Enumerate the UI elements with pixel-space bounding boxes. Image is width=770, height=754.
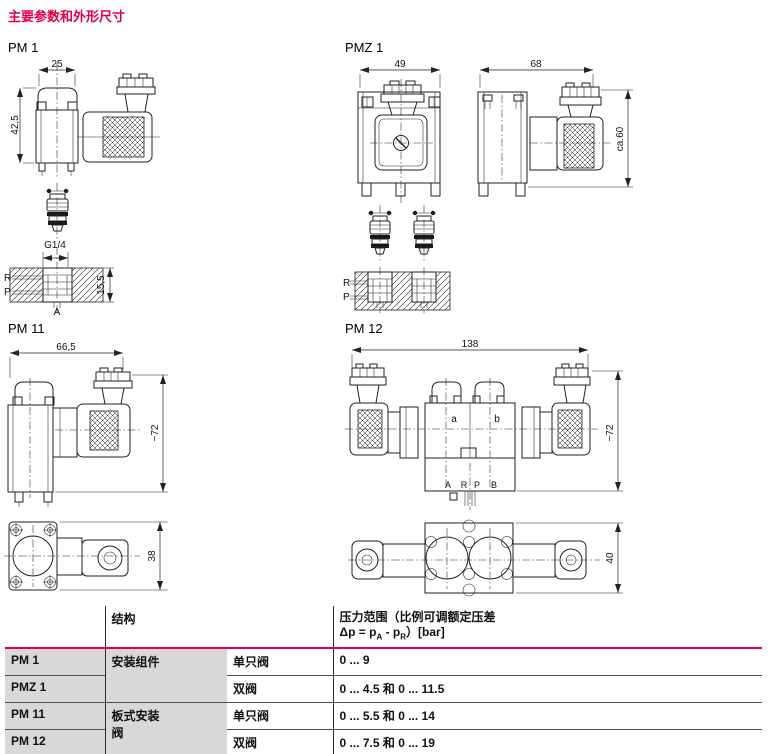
cell-model-pm1: PM 1	[5, 648, 105, 675]
drawing-label-pm12: PM 12	[345, 321, 383, 336]
pmz1-port-p-label: P	[343, 292, 350, 303]
cell-range-pmz1: 0 ... 4.5 和 0 ... 11.5	[333, 675, 762, 702]
pmz1-port-r-label: R	[343, 278, 350, 289]
cell-range-pm11: 0 ... 5.5 和 0 ... 14	[333, 702, 762, 729]
pm12-valve-a-label: a	[451, 414, 457, 425]
table-row: PM 11 板式安装 阀 单只阀 0 ... 5.5 和 0 ... 14	[5, 702, 762, 729]
cell-config-single: 单只阀	[227, 648, 333, 675]
structure-text: 安装组件	[112, 655, 160, 669]
dp-mid: - p	[382, 625, 400, 639]
pm12-dim-width-label: 138	[462, 339, 479, 350]
pmz1-front-width-label: 49	[394, 59, 406, 70]
header-pressure: 压力范围（比例可调额定压差 Δp = pA - pR）[bar]	[333, 606, 762, 648]
drawing-label-pm1: PM 1	[8, 40, 38, 55]
pm12-dim-height-label: ~72	[605, 424, 616, 441]
pmz1-height-label: ca.60	[615, 126, 626, 151]
cell-range-pm12: 0 ... 7.5 和 0 ... 19	[333, 729, 762, 754]
pm12-drawing: 138 a b A R P B	[340, 338, 640, 612]
pm11-dim-width-label: 66,5	[56, 342, 76, 353]
cell-structure-plate: 板式安装 阀	[105, 702, 227, 754]
pm11-dim-top-label: 38	[147, 550, 158, 562]
cell-range-pm1: 0 ... 9	[333, 648, 762, 675]
pm12-valve-b-label: b	[494, 414, 500, 425]
drawing-label-pmz1: PMZ 1	[345, 40, 383, 55]
table-header-row: 结构 压力范围（比例可调额定压差 Δp = pA - pR）[bar]	[5, 606, 762, 648]
pm1-port-p-label: P	[4, 287, 11, 298]
header-structure: 结构	[105, 606, 333, 648]
header-blank	[5, 606, 105, 648]
page-title: 主要参数和外形尺寸	[8, 6, 125, 25]
cell-model-pm11: PM 11	[5, 702, 105, 729]
drawing-label-pm11: PM 11	[8, 321, 45, 336]
cell-structure-mounting: 安装组件	[105, 648, 227, 702]
dp-suffix: ）[bar]	[406, 625, 445, 639]
structure-text-line1: 板式安装	[112, 707, 222, 724]
datasheet-page: 主要参数和外形尺寸 PM 1 PMZ 1 PM 11 PM 12 25 42,5	[0, 0, 770, 754]
pm11-dim-height-label: ~72	[150, 424, 161, 441]
table-row: PM 1 安装组件 单只阀 0 ... 9	[5, 648, 762, 675]
cell-config-single2: 单只阀	[227, 702, 333, 729]
pm12-port-b-label: B	[491, 480, 497, 490]
pm1-dim-depth-label: 15,5	[96, 275, 107, 295]
pm11-drawing: 66,5 ~72	[0, 338, 200, 612]
pm1-port-r-label: R	[4, 273, 11, 284]
cell-config-double2: 双阀	[227, 729, 333, 754]
pm12-port-r-label: R	[461, 480, 468, 490]
pmz1-drawing: 49 68	[340, 55, 660, 317]
header-pressure-line2: Δp = pA - pR）[bar]	[340, 625, 757, 644]
pmz1-side-width-label: 68	[530, 59, 542, 70]
structure-text-line2: 阀	[112, 724, 222, 741]
pm1-thread-label: G1/4	[44, 240, 66, 251]
cell-model-pmz1: PMZ 1	[5, 675, 105, 702]
spec-table: 结构 压力范围（比例可调额定压差 Δp = pA - pR）[bar] PM 1…	[5, 606, 762, 754]
header-pressure-line1: 压力范围（比例可调额定压差	[340, 610, 757, 625]
dp-prefix: Δp = p	[340, 625, 377, 639]
pm12-port-p-label: P	[474, 480, 480, 490]
pm1-dim-height-label: 42,5	[10, 115, 21, 135]
cell-model-pm12: PM 12	[5, 729, 105, 754]
pm12-dim-top-label: 40	[605, 552, 616, 564]
pm1-drawing: 25 42,5	[0, 55, 200, 317]
cell-config-double: 双阀	[227, 675, 333, 702]
